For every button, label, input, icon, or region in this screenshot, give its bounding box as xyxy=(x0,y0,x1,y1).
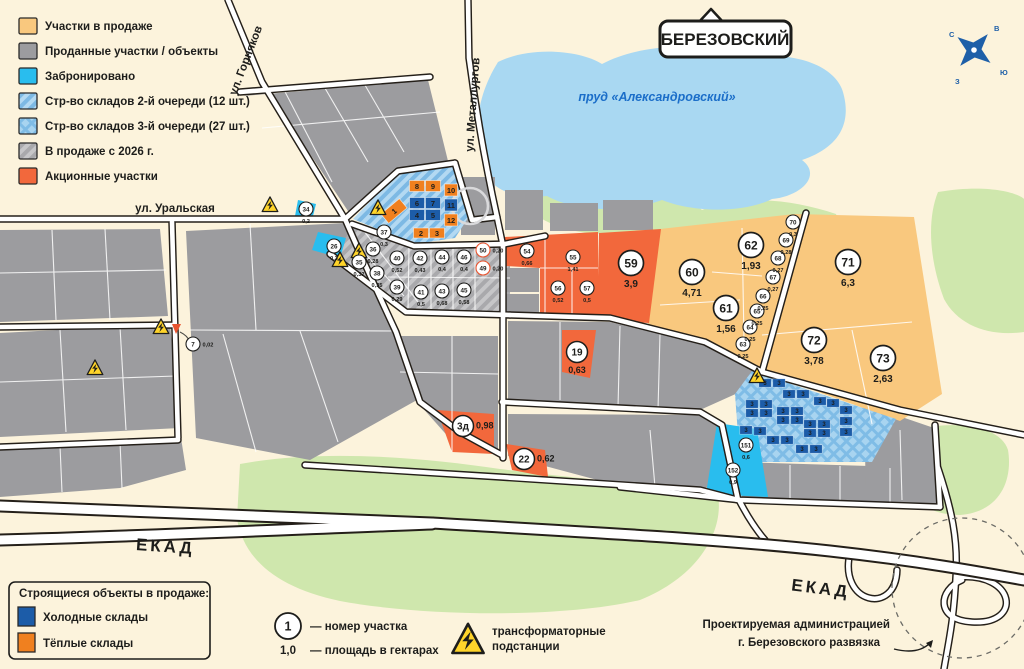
warehouse-block[interactable]: 3 xyxy=(430,228,445,238)
plot-number: 70 xyxy=(789,219,797,226)
stage3-block[interactable]: 3 xyxy=(777,416,789,424)
plot-area: 4,71 xyxy=(682,288,702,299)
plot-area: 0,28 xyxy=(368,259,379,265)
plot-number: 73 xyxy=(876,351,890,365)
plot-area: 0,25 xyxy=(745,337,756,343)
plot-area: 0,25 xyxy=(758,306,769,312)
stage3-block[interactable]: 3 xyxy=(740,426,752,434)
plot-area: 3,78 xyxy=(804,356,824,367)
plot-marker[interactable]: 732,63 xyxy=(871,346,896,386)
legend-label: Забронировано xyxy=(45,71,135,83)
plot-number: 26 xyxy=(330,243,338,250)
plot-number: 61 xyxy=(719,301,733,315)
plot-marker[interactable]: 430,68 xyxy=(435,284,449,307)
plot-number: 34 xyxy=(302,206,310,213)
compass-north: С xyxy=(949,30,955,39)
stage3-block[interactable]: 3 xyxy=(818,429,830,437)
plot-marker[interactable]: 350,32 xyxy=(352,255,366,278)
legend-swatch xyxy=(19,68,37,84)
legend-construction-title: Строящиеся объекты в продаже: xyxy=(19,588,209,600)
plot-marker[interactable]: 723,78 xyxy=(802,328,827,368)
legend-swatch xyxy=(19,143,37,159)
plot-area: 0,4 xyxy=(460,267,469,273)
warehouse-number: 6 xyxy=(415,199,419,208)
plot-number: 72 xyxy=(807,333,821,347)
stage3-block[interactable]: 3 xyxy=(783,390,795,398)
plot-marker[interactable]: 611,56 xyxy=(714,296,739,336)
plot-number: 60 xyxy=(685,265,699,279)
plot-number: 41 xyxy=(417,289,425,296)
stage3-block[interactable]: 3 xyxy=(804,420,816,428)
stage3-block[interactable]: 3 xyxy=(804,429,816,437)
plot-area: 0,32 xyxy=(354,272,365,278)
legend-item: Забронировано xyxy=(19,68,135,84)
plot-area: 0,66 xyxy=(522,261,533,267)
warehouse-block[interactable]: 8 xyxy=(410,181,425,192)
stage3-block[interactable]: 3 xyxy=(791,407,803,415)
plot-area: 0,9 xyxy=(729,480,737,486)
plot-area: 1,93 xyxy=(741,261,761,272)
plot-number: 68 xyxy=(774,255,782,262)
warehouse-block[interactable]: 5 xyxy=(426,210,441,221)
plot-number: 49 xyxy=(479,265,487,272)
warehouse-block[interactable]: 10 xyxy=(445,184,458,196)
legend-area-label: — площадь в гектарах xyxy=(310,645,439,657)
plot-area: 0,4 xyxy=(438,267,447,273)
plot-number: 36 xyxy=(369,246,377,253)
plot-number: 59 xyxy=(624,256,638,270)
legend-transformer-label-1: трансформаторные xyxy=(492,626,606,638)
stage3-block[interactable]: 3 xyxy=(781,436,793,444)
plot-number: 151 xyxy=(741,442,752,449)
legend-label: Стр-во складов 3-й очереди (27 шт.) xyxy=(45,121,250,133)
plot-number: 55 xyxy=(569,254,577,261)
plot-marker[interactable]: 190,63 xyxy=(567,342,588,376)
site-map: 189106711451223 333333333333333333333333… xyxy=(0,0,1024,669)
warehouse-number: 11 xyxy=(447,201,455,210)
plot-marker[interactable]: 621,93 xyxy=(739,233,764,273)
legend-swatch xyxy=(18,633,35,652)
plot-area: 0,5 xyxy=(583,298,591,304)
plot-marker[interactable]: 551,41 xyxy=(566,250,580,273)
legend-swatch xyxy=(19,43,37,59)
stage3-block[interactable]: 3 xyxy=(746,400,758,408)
plot-area: 0,25 xyxy=(738,354,749,360)
plot-marker[interactable]: 540,66 xyxy=(520,244,534,267)
warehouse-number: 9 xyxy=(431,182,435,191)
plot-number: 69 xyxy=(782,237,790,244)
map-canvas: 189106711451223 333333333333333333333333… xyxy=(0,0,1024,669)
stage3-block[interactable]: 3 xyxy=(767,436,779,444)
annotation-line1: Проектируемая администрацией xyxy=(702,619,890,631)
stage3-block[interactable]: 3 xyxy=(760,400,772,408)
warehouse-block[interactable]: 7 xyxy=(426,198,441,209)
warehouse-number: 10 xyxy=(447,186,455,195)
plot-number: 3д xyxy=(457,422,470,433)
stage3-block[interactable]: 3 xyxy=(840,417,852,425)
stage3-block[interactable]: 3 xyxy=(827,399,839,407)
warehouse-block[interactable]: 12 xyxy=(445,214,458,226)
warehouse-block[interactable]: 9 xyxy=(426,181,441,192)
plot-area: 0,02 xyxy=(203,343,214,349)
plot-area: 0,28 xyxy=(781,250,792,256)
plot-area: 0,98 xyxy=(476,421,494,431)
pond-label: пруд «Александровский» xyxy=(578,90,735,104)
plot-number: 66 xyxy=(759,293,767,300)
plot-area: 0,2 xyxy=(302,219,310,225)
stage3-block[interactable]: 3 xyxy=(814,397,826,405)
plot-number: 44 xyxy=(438,254,446,261)
plot-area: 0,62 xyxy=(537,454,555,464)
street-uralskaya: ул. Уральская xyxy=(135,203,215,215)
plot-number: 56 xyxy=(554,285,562,292)
plot-area: 0,29 xyxy=(392,297,403,303)
legend-transformer-label-2: подстанции xyxy=(492,641,560,653)
legend-construction: Строящиеся объекты в продаже: Холодные с… xyxy=(9,582,210,659)
plot-area: 2,63 xyxy=(873,374,893,385)
plot-area: 0,3 xyxy=(330,256,338,262)
plot-area: 0,52 xyxy=(553,298,564,304)
plot-number: 7 xyxy=(191,341,195,348)
plot-area: 1,56 xyxy=(716,324,736,335)
plot-area: 0,27 xyxy=(768,287,779,293)
stage3-block[interactable]: 3 xyxy=(840,406,852,414)
legend-area-example: 1,0 xyxy=(280,645,296,657)
plot-area: 0,20 xyxy=(493,267,504,273)
plot-area: 0,35 xyxy=(372,283,383,289)
plot-number: 22 xyxy=(518,455,530,466)
plot-area: 0,6 xyxy=(742,455,750,461)
legend-label: Холодные склады xyxy=(43,612,148,624)
plot-marker[interactable]: 604,71 xyxy=(680,260,705,300)
legend-label: Проданные участки / объекты xyxy=(45,46,218,58)
plot-number: 38 xyxy=(373,270,381,277)
plot-number: 71 xyxy=(841,255,855,269)
stage3-block[interactable]: 3 xyxy=(840,428,852,436)
legend-item: Проданные участки / объекты xyxy=(19,43,218,59)
stage3-block[interactable]: 3 xyxy=(754,427,766,435)
plot-number: 43 xyxy=(438,288,446,295)
plot-area: 0,52 xyxy=(392,268,403,274)
legend-number-example: 1 xyxy=(285,620,292,634)
stage3-block[interactable]: 3 xyxy=(796,445,808,453)
plot-area: 0,58 xyxy=(459,300,470,306)
plot-area: 6,3 xyxy=(841,278,855,289)
legend-label: Участки в продаже xyxy=(45,21,152,33)
plot-number: 62 xyxy=(744,238,758,252)
plot-area: 0,43 xyxy=(415,268,426,274)
warehouse-block[interactable]: 4 xyxy=(410,210,425,221)
legend-swatch xyxy=(18,607,35,626)
plot-number: 57 xyxy=(583,285,591,292)
warehouse-number: 12 xyxy=(447,216,455,225)
compass-south: Ю xyxy=(1000,68,1008,77)
plot-number: 19 xyxy=(571,348,583,359)
warehouse-block[interactable]: 11 xyxy=(445,199,458,211)
plot-marker[interactable]: 390,29 xyxy=(390,280,404,303)
plot-area: 3,9 xyxy=(624,279,638,290)
stage3-block[interactable]: 3 xyxy=(791,416,803,424)
promo-inner-sold xyxy=(506,268,539,316)
plot-area: 0,3 xyxy=(380,242,388,248)
plot-area: 0,5 xyxy=(417,302,425,308)
warehouse-block[interactable]: 6 xyxy=(410,198,425,209)
legend-swatch xyxy=(19,93,37,109)
legend-number-label: — номер участка xyxy=(310,621,408,633)
warehouse-number: 8 xyxy=(415,182,419,191)
legend-swatch xyxy=(19,18,37,34)
plot-number: 42 xyxy=(416,255,424,262)
plot-area: 1,41 xyxy=(568,267,579,273)
plot-area: 0,3 xyxy=(789,232,797,238)
compass-east: В xyxy=(994,24,1000,33)
legend-label: Стр-во складов 2-й очереди (12 шт.) xyxy=(45,96,250,108)
annotation-line2: г. Березовского развязка xyxy=(738,637,881,649)
plot-number: 35 xyxy=(355,259,363,266)
plot-area: 0,20 xyxy=(493,249,504,255)
plot-area: 0,68 xyxy=(437,301,448,307)
plot-number: 54 xyxy=(523,248,531,255)
plot-number: 45 xyxy=(460,287,468,294)
warehouse-number: 5 xyxy=(431,211,435,220)
legend-swatch xyxy=(19,118,37,134)
plot-number: 152 xyxy=(728,467,739,474)
plot-marker[interactable]: 380,35 xyxy=(370,266,384,289)
warehouse-number: 7 xyxy=(431,199,435,208)
plot-area: 0,25 xyxy=(752,321,763,327)
stage3-block[interactable]: 3 xyxy=(777,407,789,415)
plot-number: 50 xyxy=(479,247,487,254)
legend-swatch xyxy=(19,168,37,184)
stage3-block[interactable]: 3 xyxy=(760,409,772,417)
plot-marker[interactable]: 560,52 xyxy=(551,281,565,304)
plot-marker[interactable]: 450,58 xyxy=(457,283,471,306)
plot-number: 40 xyxy=(393,255,401,262)
plot-marker[interactable]: 400,52 xyxy=(390,251,404,274)
legend-item: Стр-во складов 3-й очереди (27 шт.) xyxy=(19,118,250,134)
legend-label: Тёплые склады xyxy=(43,638,133,650)
plot-marker[interactable]: 360,28 xyxy=(366,242,380,265)
plot-number: 46 xyxy=(460,254,468,261)
city-sign-label: БЕРЕЗОВСКИЙ xyxy=(661,30,790,49)
warehouse-number: 2 xyxy=(419,229,423,238)
legend-label: Акционные участки xyxy=(45,171,158,183)
plot-number: 37 xyxy=(380,229,388,236)
pond xyxy=(478,47,846,210)
stage3-block[interactable]: 3 xyxy=(746,409,758,417)
plot-marker[interactable]: 420,43 xyxy=(413,251,427,274)
warehouse-number: 3 xyxy=(435,229,439,238)
legend-label: В продаже с 2026 г. xyxy=(45,146,154,158)
plot-number: 67 xyxy=(769,274,777,281)
legend-item: Стр-во складов 2-й очереди (12 шт.) xyxy=(19,93,250,109)
stage3-block[interactable]: 3 xyxy=(810,445,822,453)
stage3-block[interactable]: 3 xyxy=(773,379,785,387)
compass-west: З xyxy=(955,77,960,86)
stage3-block[interactable]: 3 xyxy=(797,390,809,398)
plot-area: 0,63 xyxy=(568,365,586,375)
plot-area: 0,27 xyxy=(773,268,784,274)
warehouse-block[interactable]: 2 xyxy=(414,228,429,238)
stage3-block[interactable]: 3 xyxy=(818,420,830,428)
plot-number: 39 xyxy=(393,284,401,291)
